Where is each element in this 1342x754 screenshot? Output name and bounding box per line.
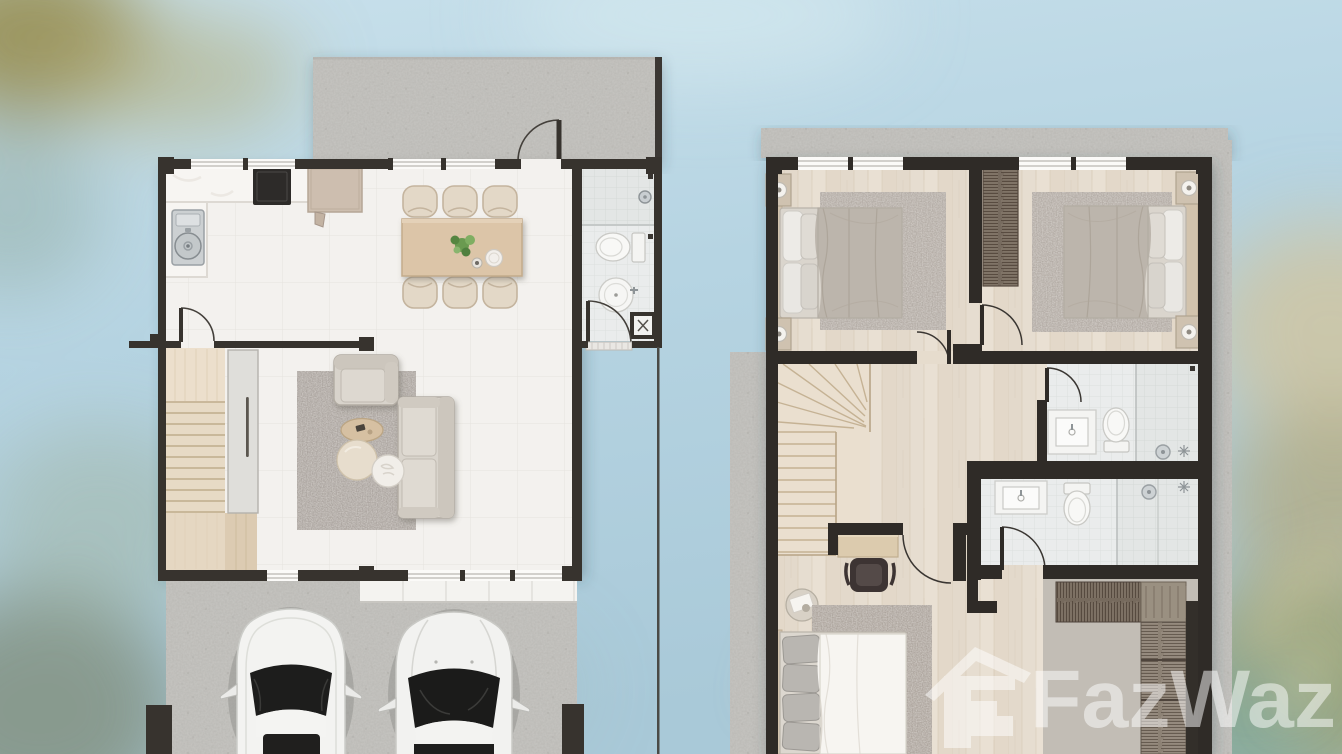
svg-text:FazWaz: FazWaz (1030, 654, 1336, 745)
